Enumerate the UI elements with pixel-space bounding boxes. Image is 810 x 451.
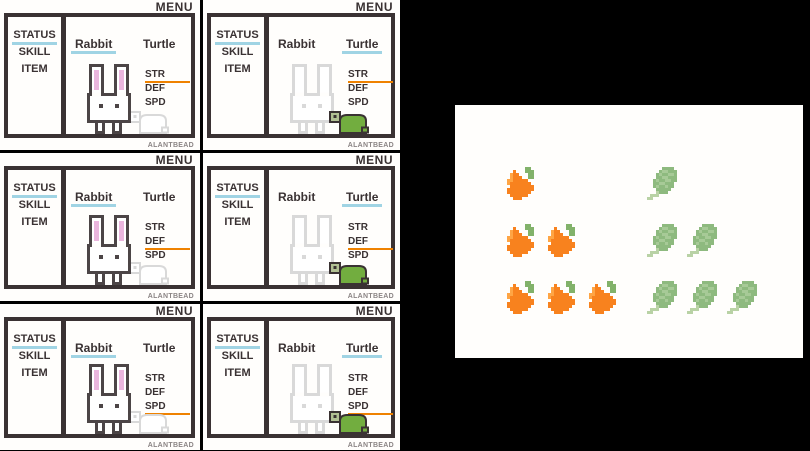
tab-turtle[interactable]: Turtle [139, 190, 179, 207]
tab-rabbit[interactable]: Rabbit [71, 190, 116, 207]
stat-def: DEF [145, 83, 190, 97]
greens-icon [647, 167, 683, 201]
stats-list: STR DEF SPD [145, 373, 190, 415]
sidebar-item-status-label: STATUS [215, 332, 259, 349]
menu-screen-4: MENU STATUS SKILL ITEM Rabbit Turtle STR… [203, 153, 400, 301]
credit-signature: ALANTBEAD [348, 293, 394, 300]
tab-rabbit[interactable]: Rabbit [274, 37, 319, 54]
credit-signature: ALANTBEAD [148, 293, 194, 300]
sidebar-item-status-label: STATUS [215, 28, 259, 45]
sidebar-item-item-label: ITEM [223, 366, 251, 383]
menu-frame: STATUS SKILL ITEM Rabbit Turtle STR DEF … [4, 317, 195, 438]
menu-screen-6: MENU STATUS SKILL ITEM Rabbit Turtle STR… [203, 304, 400, 450]
stats-list: STR DEF SPD [348, 69, 393, 111]
stat-str: STR [145, 373, 190, 387]
sidebar-item-status[interactable]: STATUS [8, 28, 61, 45]
sidebar-item-item-label: ITEM [20, 62, 48, 79]
menu-screen-2: MENU STATUS SKILL ITEM Rabbit Turtle STR… [203, 0, 400, 150]
greens-icon [727, 281, 763, 315]
menu-frame: STATUS SKILL ITEM Rabbit Turtle STR DEF … [207, 317, 395, 438]
sidebar-item-skill-label: SKILL [18, 349, 52, 366]
greens-icon [647, 224, 683, 258]
greens-icon [687, 281, 723, 315]
credit-signature: ALANTBEAD [348, 442, 394, 449]
rabbit-sprite [86, 215, 132, 285]
sidebar-item-item-label: ITEM [223, 62, 251, 79]
sidebar-item-item[interactable]: ITEM [8, 215, 61, 232]
menu-screen-3: MENU STATUS SKILL ITEM Rabbit Turtle STR… [0, 153, 200, 301]
sidebar-item-status-label: STATUS [12, 181, 56, 198]
menu-main: Rabbit Turtle STR DEF SPD [269, 321, 391, 434]
sidebar-item-item[interactable]: ITEM [211, 215, 264, 232]
menu-sidebar: STATUS SKILL ITEM [211, 170, 269, 285]
sidebar-item-item[interactable]: ITEM [8, 366, 61, 383]
sidebar-item-skill[interactable]: SKILL [8, 198, 61, 215]
greens-icon [687, 224, 723, 258]
tab-turtle[interactable]: Turtle [342, 190, 382, 207]
menu-title: MENU [356, 153, 393, 167]
menu-title: MENU [356, 0, 393, 14]
stat-str: STR [348, 222, 393, 236]
sidebar-item-skill-label: SKILL [18, 198, 52, 215]
sidebar-item-skill[interactable]: SKILL [211, 45, 264, 62]
sidebar-item-status[interactable]: STATUS [211, 28, 264, 45]
menu-main: Rabbit Turtle STR DEF SPD [269, 17, 391, 134]
turtle-sprite [129, 111, 171, 134]
carrot-icon [548, 224, 584, 258]
stats-list: STR DEF SPD [145, 222, 190, 264]
turtle-sprite [329, 111, 371, 134]
menu-sidebar: STATUS SKILL ITEM [211, 17, 269, 134]
stats-list: STR DEF SPD [348, 222, 393, 264]
menu-screen-5: MENU STATUS SKILL ITEM Rabbit Turtle STR… [0, 304, 200, 450]
carrot-icon [507, 224, 543, 258]
menu-sidebar: STATUS SKILL ITEM [8, 17, 66, 134]
menu-grid: MENU STATUS SKILL ITEM Rabbit Turtle STR… [0, 0, 400, 451]
carrot-icon [589, 281, 625, 315]
credit-signature: ALANTBEAD [148, 142, 194, 149]
sidebar-item-status[interactable]: STATUS [211, 332, 264, 349]
stat-spd: SPD [348, 97, 393, 111]
menu-main: Rabbit Turtle STR DEF SPD [269, 170, 391, 285]
stat-def: DEF [145, 236, 190, 250]
stat-spd: SPD [145, 97, 190, 111]
rabbit-sprite [86, 364, 132, 434]
sidebar-item-item-label: ITEM [20, 366, 48, 383]
tab-turtle[interactable]: Turtle [342, 341, 382, 358]
sidebar-item-skill[interactable]: SKILL [211, 349, 264, 366]
menu-sidebar: STATUS SKILL ITEM [211, 321, 269, 434]
menu-sidebar: STATUS SKILL ITEM [8, 170, 66, 285]
tab-rabbit[interactable]: Rabbit [71, 341, 116, 358]
greens-icon [647, 281, 683, 315]
stat-def: DEF [145, 387, 190, 401]
menu-frame: STATUS SKILL ITEM Rabbit Turtle STR DEF … [4, 13, 195, 138]
carrot-icon [507, 281, 543, 315]
tab-turtle[interactable]: Turtle [139, 37, 179, 54]
sidebar-item-item[interactable]: ITEM [211, 366, 264, 383]
stat-str: STR [145, 222, 190, 236]
tab-rabbit[interactable]: Rabbit [274, 190, 319, 207]
stat-def: DEF [348, 236, 393, 250]
turtle-sprite [329, 411, 371, 434]
sidebar-item-status-label: STATUS [12, 332, 56, 349]
stat-str: STR [348, 69, 393, 83]
sidebar-item-skill-label: SKILL [18, 45, 52, 62]
menu-screen-1: MENU STATUS SKILL ITEM Rabbit Turtle STR… [0, 0, 200, 150]
menu-main: Rabbit Turtle STR DEF SPD [66, 321, 191, 434]
sidebar-item-status-label: STATUS [215, 181, 259, 198]
stat-def: DEF [348, 387, 393, 401]
sidebar-item-skill-label: SKILL [221, 349, 255, 366]
stat-def: DEF [348, 83, 393, 97]
menu-title: MENU [156, 153, 193, 167]
credit-signature: ALANTBEAD [148, 442, 194, 449]
food-count-panel [455, 105, 803, 358]
menu-frame: STATUS SKILL ITEM Rabbit Turtle STR DEF … [4, 166, 195, 289]
sidebar-item-skill[interactable]: SKILL [211, 198, 264, 215]
sidebar-item-skill-label: SKILL [221, 198, 255, 215]
menu-main: Rabbit Turtle STR DEF SPD [66, 17, 191, 134]
sidebar-item-item-label: ITEM [223, 215, 251, 232]
menu-frame: STATUS SKILL ITEM Rabbit Turtle STR DEF … [207, 166, 395, 289]
menu-sidebar: STATUS SKILL ITEM [8, 321, 66, 434]
carrot-icon [507, 167, 543, 201]
sidebar-item-skill-label: SKILL [221, 45, 255, 62]
sidebar-item-item-label: ITEM [20, 215, 48, 232]
sidebar-item-skill[interactable]: SKILL [8, 349, 61, 366]
stat-str: STR [348, 373, 393, 387]
credit-signature: ALANTBEAD [348, 142, 394, 149]
menu-main: Rabbit Turtle STR DEF SPD [66, 170, 191, 285]
sidebar-item-status[interactable]: STATUS [211, 181, 264, 198]
carrot-icon [548, 281, 584, 315]
stage: MENU STATUS SKILL ITEM Rabbit Turtle STR… [0, 0, 810, 451]
turtle-sprite [329, 262, 371, 285]
stat-str: STR [145, 69, 190, 83]
stats-list: STR DEF SPD [145, 69, 190, 111]
menu-frame: STATUS SKILL ITEM Rabbit Turtle STR DEF … [207, 13, 395, 138]
turtle-sprite [129, 411, 171, 434]
tab-turtle[interactable]: Turtle [342, 37, 382, 54]
sidebar-item-skill[interactable]: SKILL [8, 45, 61, 62]
sidebar-item-item[interactable]: ITEM [211, 62, 264, 79]
tab-turtle[interactable]: Turtle [139, 341, 179, 358]
sidebar-item-status[interactable]: STATUS [8, 181, 61, 198]
sidebar-item-status-label: STATUS [12, 28, 56, 45]
menu-title: MENU [156, 0, 193, 14]
tab-rabbit[interactable]: Rabbit [71, 37, 116, 54]
turtle-sprite [129, 262, 171, 285]
menu-title: MENU [156, 304, 193, 318]
tab-rabbit[interactable]: Rabbit [274, 341, 319, 358]
stats-list: STR DEF SPD [348, 373, 393, 415]
sidebar-item-status[interactable]: STATUS [8, 332, 61, 349]
rabbit-sprite [86, 64, 132, 134]
sidebar-item-item[interactable]: ITEM [8, 62, 61, 79]
menu-title: MENU [356, 304, 393, 318]
